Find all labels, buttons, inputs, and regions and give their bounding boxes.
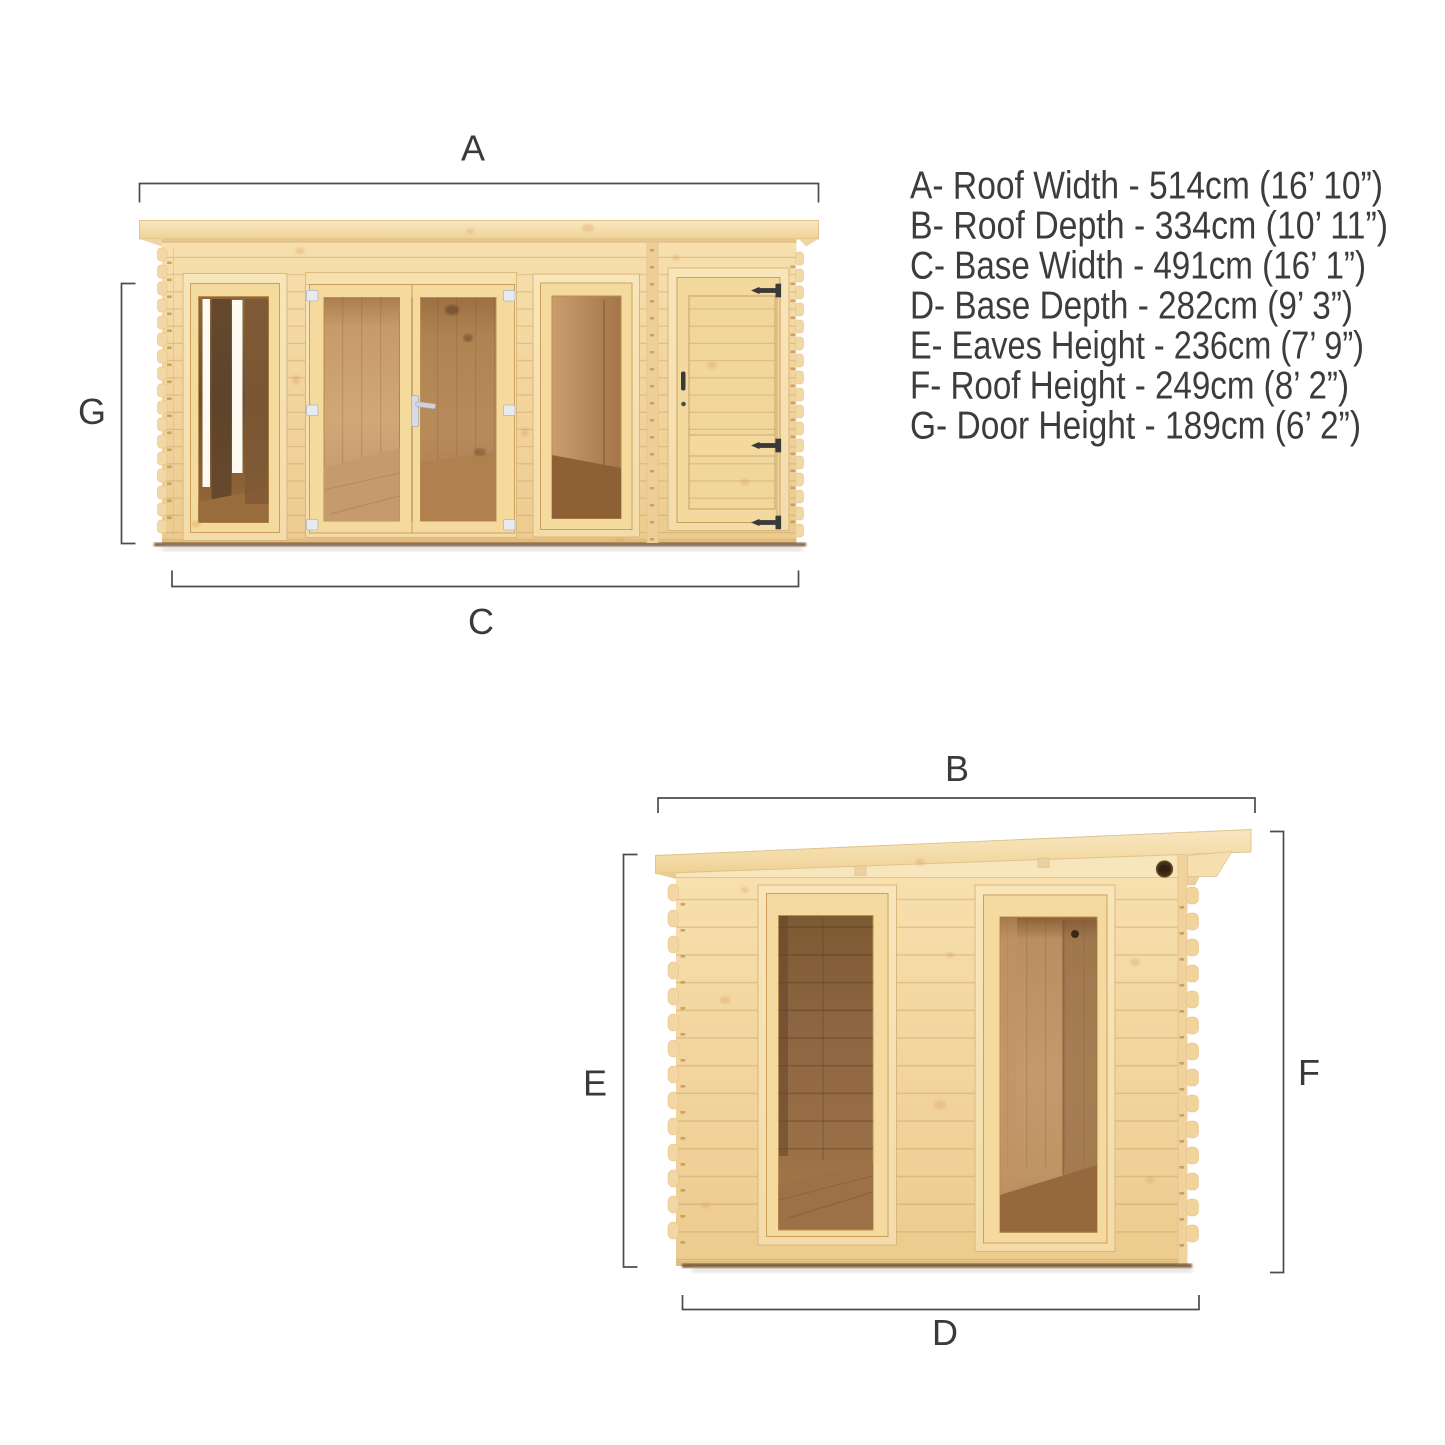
svg-text:A: A	[461, 128, 485, 169]
svg-text:B- Roof Depth - 334cm (10’ 11”: B- Roof Depth - 334cm (10’ 11”)	[910, 205, 1388, 248]
svg-text:A- Roof Width - 514cm (16’ 10”: A- Roof Width - 514cm (16’ 10”)	[910, 165, 1383, 208]
svg-text:G- Door Height - 189cm (6’ 2”): G- Door Height - 189cm (6’ 2”)	[910, 405, 1361, 448]
svg-text:B: B	[945, 748, 969, 789]
svg-text:G: G	[78, 391, 106, 432]
svg-text:E- Eaves Height - 236cm (7’ 9”: E- Eaves Height - 236cm (7’ 9”)	[910, 325, 1364, 368]
svg-text:D: D	[932, 1312, 958, 1353]
svg-text:D- Base Depth - 282cm (9’ 3”): D- Base Depth - 282cm (9’ 3”)	[910, 285, 1353, 328]
svg-text:F: F	[1298, 1052, 1320, 1093]
svg-text:C- Base Width - 491cm (16’ 1”): C- Base Width - 491cm (16’ 1”)	[910, 245, 1366, 288]
svg-text:F- Roof Height - 249cm (8’ 2”): F- Roof Height - 249cm (8’ 2”)	[910, 365, 1349, 408]
svg-text:E: E	[583, 1063, 607, 1104]
svg-text:C: C	[468, 601, 494, 642]
